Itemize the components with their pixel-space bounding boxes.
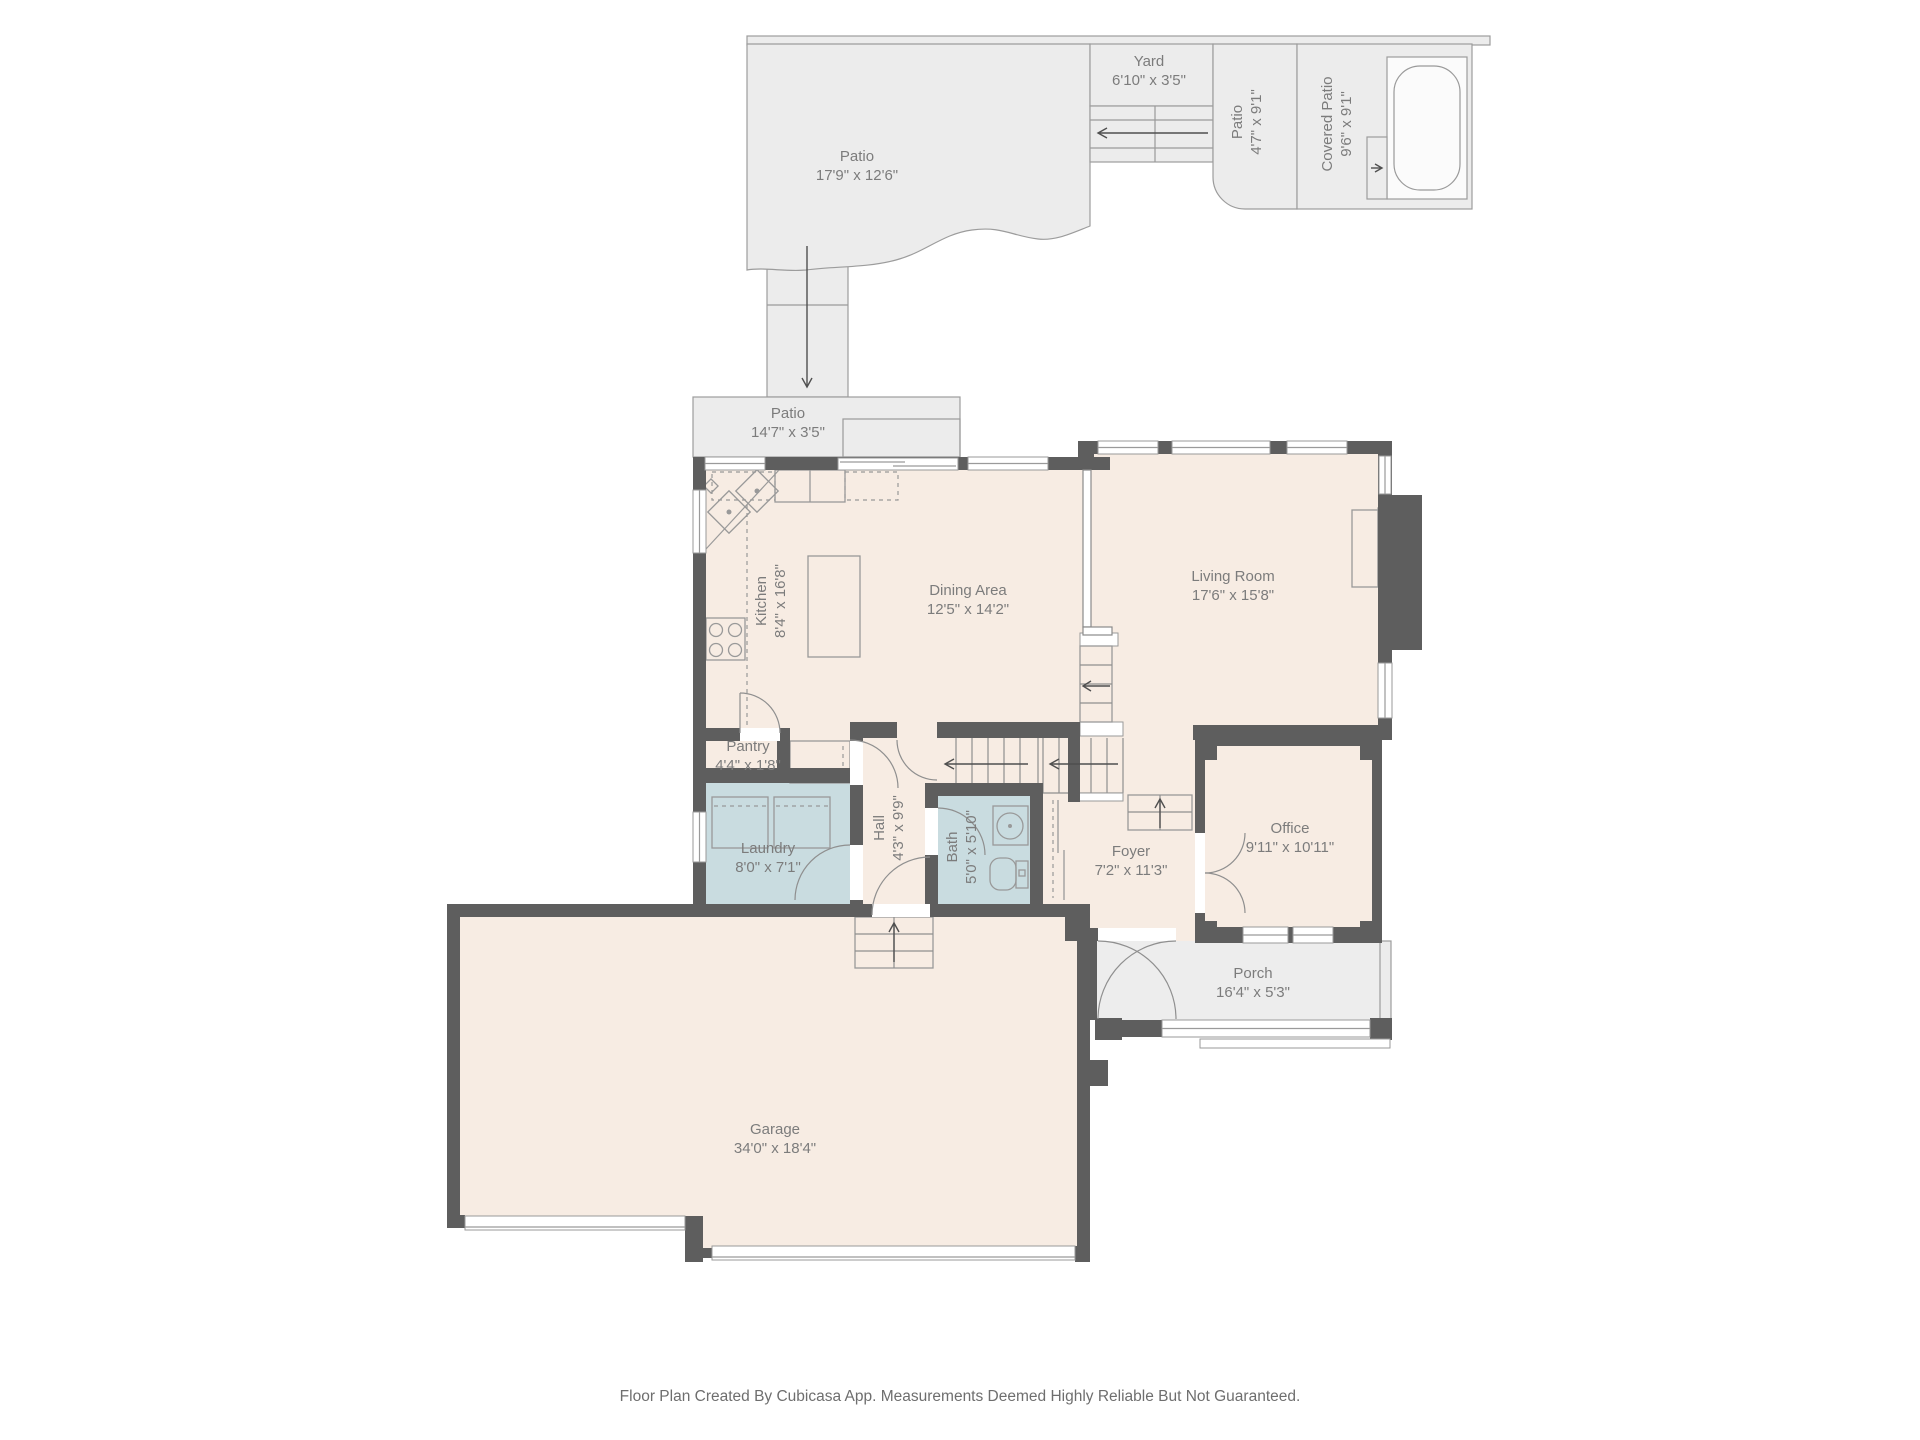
room-label-dining: Dining Area 12'5" x 14'2" (927, 581, 1009, 619)
room-label-foyer: Foyer 7'2" x 11'3" (1095, 842, 1168, 880)
room-name: Hall (870, 795, 889, 861)
room-label-yard: Yard 6'10" x 3'5" (1112, 52, 1186, 90)
room-name: Dining Area (927, 581, 1009, 600)
room-dims: 4'7" x 9'1" (1247, 89, 1266, 155)
room-label-garage: Garage 34'0" x 18'4" (734, 1120, 816, 1158)
room-dims: 16'4" x 5'3" (1216, 983, 1290, 1002)
room-name: Yard (1112, 52, 1186, 71)
room-label-porch: Porch 16'4" x 5'3" (1216, 964, 1290, 1002)
room-dims: 9'6" x 9'1" (1337, 76, 1356, 171)
room-name: Patio (1228, 89, 1247, 155)
room-label-office: Office 9'11" x 10'11" (1246, 819, 1334, 857)
room-name: Laundry (735, 839, 801, 858)
room-name: Office (1246, 819, 1334, 838)
room-name: Foyer (1095, 842, 1168, 861)
room-name: Living Room (1191, 567, 1274, 586)
room-label-laundry: Laundry 8'0" x 7'1" (735, 839, 801, 877)
room-dims: 7'2" x 11'3" (1095, 861, 1168, 880)
room-name: Covered Patio (1318, 76, 1337, 171)
room-label-patio-mid: Patio 14'7" x 3'5" (751, 404, 825, 442)
room-label-bath: Bath 5'0" x 5'10" (943, 810, 981, 884)
room-label-patio-side: Patio 4'7" x 9'1" (1228, 89, 1266, 155)
room-dims: 9'11" x 10'11" (1246, 838, 1334, 857)
outdoor-areas (693, 36, 1490, 457)
room-label-covered-patio: Covered Patio 9'6" x 9'1" (1318, 76, 1356, 171)
room-name: Bath (943, 810, 962, 884)
room-dims: 4'3" x 9'9" (889, 795, 908, 861)
room-label-patio-top: Patio 17'9" x 12'6" (816, 147, 898, 185)
room-name: Pantry (715, 737, 781, 756)
room-name: Garage (734, 1120, 816, 1139)
room-label-hall: Hall 4'3" x 9'9" (870, 795, 908, 861)
room-dims: 4'4" x 1'8" (715, 756, 781, 775)
room-dims: 6'10" x 3'5" (1112, 71, 1186, 90)
room-dims: 8'4" x 16'8" (771, 564, 790, 638)
room-dims: 17'6" x 15'8" (1191, 586, 1274, 605)
room-dims: 5'0" x 5'10" (962, 810, 981, 884)
room-dims: 12'5" x 14'2" (927, 600, 1009, 619)
room-label-living: Living Room 17'6" x 15'8" (1191, 567, 1274, 605)
room-dims: 14'7" x 3'5" (751, 423, 825, 442)
room-name: Patio (751, 404, 825, 423)
room-label-pantry: Pantry 4'4" x 1'8" (715, 737, 781, 775)
room-dims: 34'0" x 18'4" (734, 1139, 816, 1158)
floor-plan-page: Patio 17'9" x 12'6" Yard 6'10" x 3'5" Pa… (0, 0, 1920, 1440)
room-name: Porch (1216, 964, 1290, 983)
room-dims: 8'0" x 7'1" (735, 858, 801, 877)
floor-plan-drawing (0, 0, 1920, 1440)
room-name: Kitchen (752, 564, 771, 638)
room-label-kitchen: Kitchen 8'4" x 16'8" (752, 564, 790, 638)
room-name: Patio (816, 147, 898, 166)
room-dims: 17'9" x 12'6" (816, 166, 898, 185)
disclaimer-text: Floor Plan Created By Cubicasa App. Meas… (0, 1388, 1920, 1406)
